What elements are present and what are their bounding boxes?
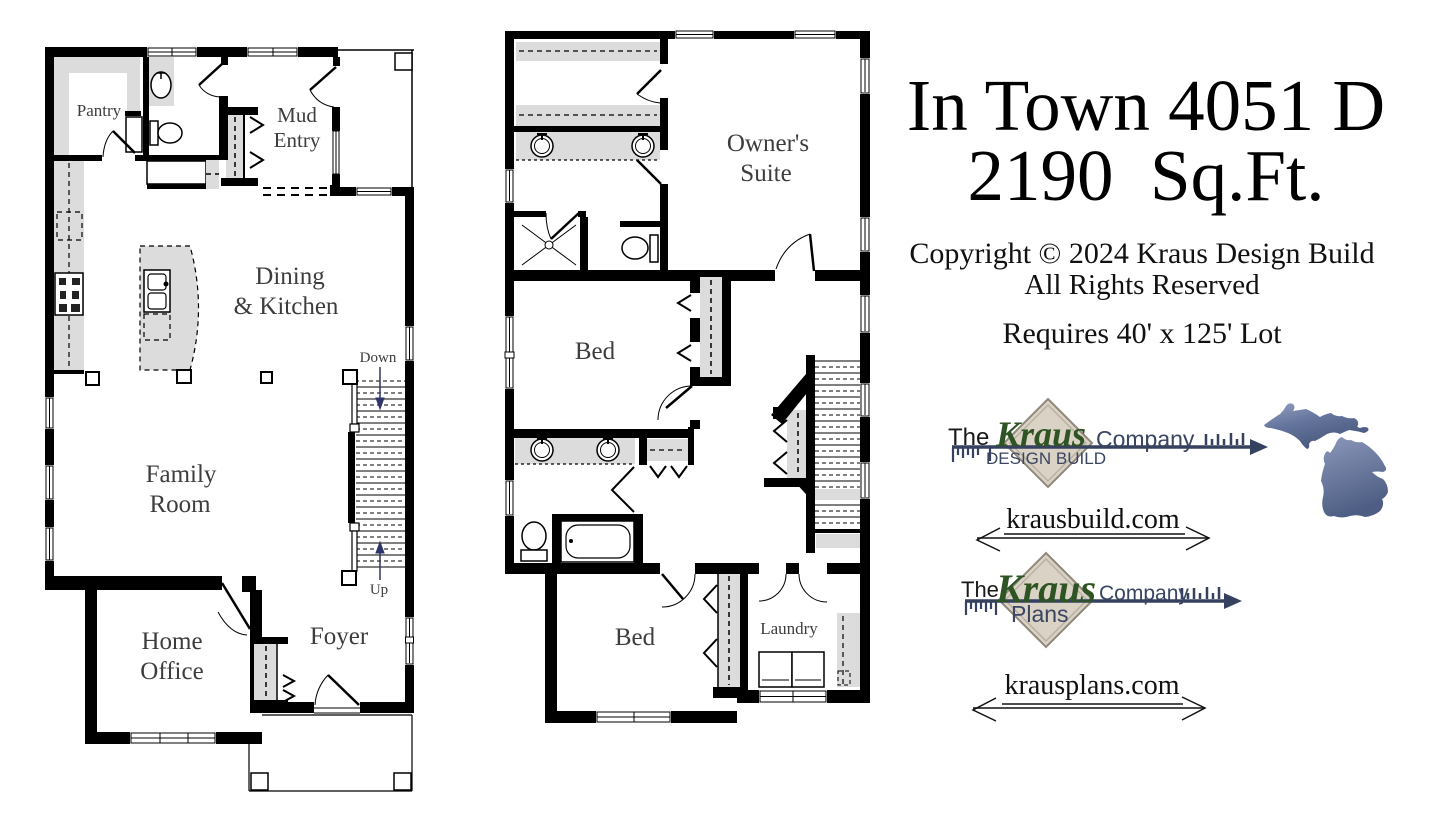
svg-text:Office: Office xyxy=(140,658,203,685)
svg-text:2190 Sq.Ft.: 2190 Sq.Ft. xyxy=(968,135,1325,216)
svg-text:Plans: Plans xyxy=(1011,601,1069,627)
svg-text:Home: Home xyxy=(141,628,202,655)
svg-text:Owner's: Owner's xyxy=(727,130,809,157)
svg-text:All Rights Reserved: All Rights Reserved xyxy=(1024,269,1260,301)
svg-text:Requires 40' x 125' Lot: Requires 40' x 125' Lot xyxy=(1002,317,1282,350)
svg-text:& Kitchen: & Kitchen xyxy=(234,293,339,320)
svg-text:Room: Room xyxy=(149,491,211,518)
svg-text:krausbuild.com: krausbuild.com xyxy=(1006,504,1180,535)
svg-text:DESIGN BUILD: DESIGN BUILD xyxy=(986,449,1106,468)
svg-text:Foyer: Foyer xyxy=(310,623,369,650)
svg-text:Bed: Bed xyxy=(575,338,616,365)
svg-text:Company: Company xyxy=(1096,426,1195,452)
svg-text:Up: Up xyxy=(370,582,388,598)
svg-text:Dining: Dining xyxy=(255,263,325,290)
svg-text:Company: Company xyxy=(1099,582,1189,605)
svg-text:Mud: Mud xyxy=(277,103,317,127)
svg-text:Bed: Bed xyxy=(615,624,656,651)
svg-text:The: The xyxy=(948,424,989,451)
svg-text:Down: Down xyxy=(360,350,397,366)
svg-text:Entry: Entry xyxy=(274,128,321,152)
svg-text:Laundry: Laundry xyxy=(760,619,818,638)
svg-text:krausplans.com: krausplans.com xyxy=(1005,670,1180,701)
svg-text:Family: Family xyxy=(146,461,217,488)
svg-text:Suite: Suite xyxy=(740,160,791,187)
svg-text:The: The xyxy=(961,577,999,602)
svg-text:Pantry: Pantry xyxy=(77,101,122,120)
svg-text:In Town 4051 D: In Town 4051 D xyxy=(907,65,1385,146)
svg-text:Copyright © 2024 Kraus Design: Copyright © 2024 Kraus Design Build xyxy=(909,237,1374,270)
svg-text:Kraus: Kraus xyxy=(995,414,1086,454)
